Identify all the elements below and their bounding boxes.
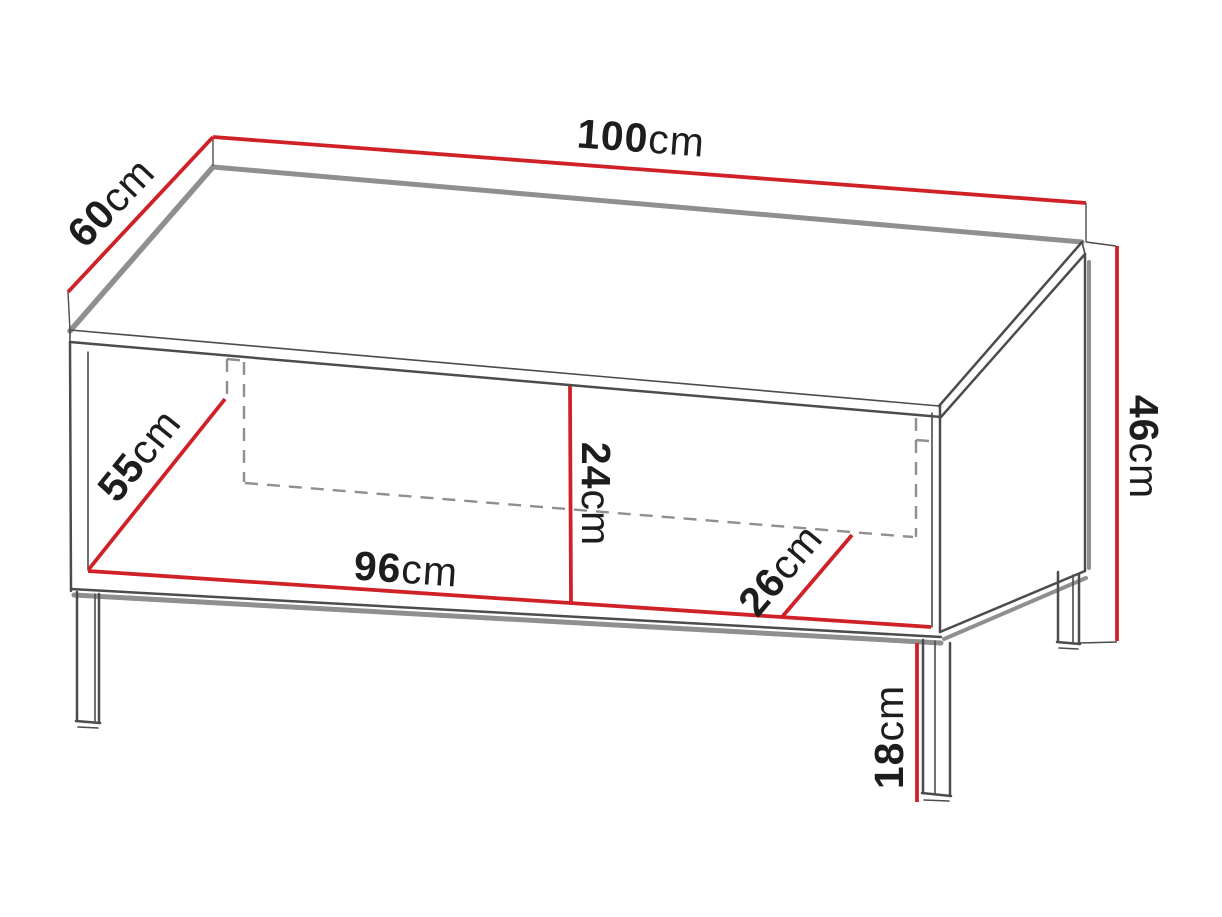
legs — [76, 572, 1080, 801]
ext-46-top — [1086, 242, 1116, 246]
base-bottom-edge — [71, 589, 941, 637]
front-left-leg — [76, 592, 100, 728]
hidden-right-tick — [916, 440, 929, 441]
leg-foot-line — [1059, 648, 1078, 649]
leg-foot-line — [78, 727, 98, 728]
furniture-dimension-diagram: 100cm 60cm 46cm 55cm 24cm 96cm 26cm 18cm — [0, 0, 1222, 917]
dim-label-100cm: 100cm — [575, 110, 706, 165]
left-front-edge — [70, 342, 71, 591]
dim-label-96cm: 96cm — [352, 542, 459, 595]
right-panel-bottom-shadow — [944, 578, 1086, 639]
diagram-canvas: 100cm 60cm 46cm 55cm 24cm 96cm 26cm 18cm — [0, 0, 1222, 917]
right-panel — [932, 254, 1089, 639]
front-right-leg — [922, 640, 951, 801]
ext-46-bottom — [1080, 642, 1117, 643]
dim-label-55cm: 55cm — [88, 400, 189, 510]
leg-foot — [1057, 642, 1080, 644]
right-panel-bottom-edge — [940, 571, 1085, 632]
dim-line-24cm — [570, 386, 571, 603]
extension-lines — [68, 137, 1117, 643]
hidden-left-tick — [227, 359, 246, 361]
top-right-edge — [939, 242, 1082, 406]
leg-foot — [922, 793, 951, 796]
leg-foot — [76, 721, 100, 723]
leg-foot-line — [924, 800, 949, 801]
dim-label-18cm: 18cm — [866, 685, 912, 789]
dim-label-46cm: 46cm — [1121, 395, 1167, 499]
top-underside-front-edge — [70, 342, 941, 417]
top-underside-right-edge — [941, 254, 1085, 417]
dimension-labels: 100cm 60cm 46cm 55cm 24cm 96cm 26cm 18cm — [58, 110, 1167, 789]
top-back-edge — [213, 167, 1082, 242]
top-front-edge — [70, 330, 939, 406]
dim-label-26cm: 26cm — [729, 515, 831, 624]
table-top — [70, 167, 1085, 417]
dim-label-24cm: 24cm — [573, 442, 619, 546]
ext-top-left — [68, 292, 70, 331]
